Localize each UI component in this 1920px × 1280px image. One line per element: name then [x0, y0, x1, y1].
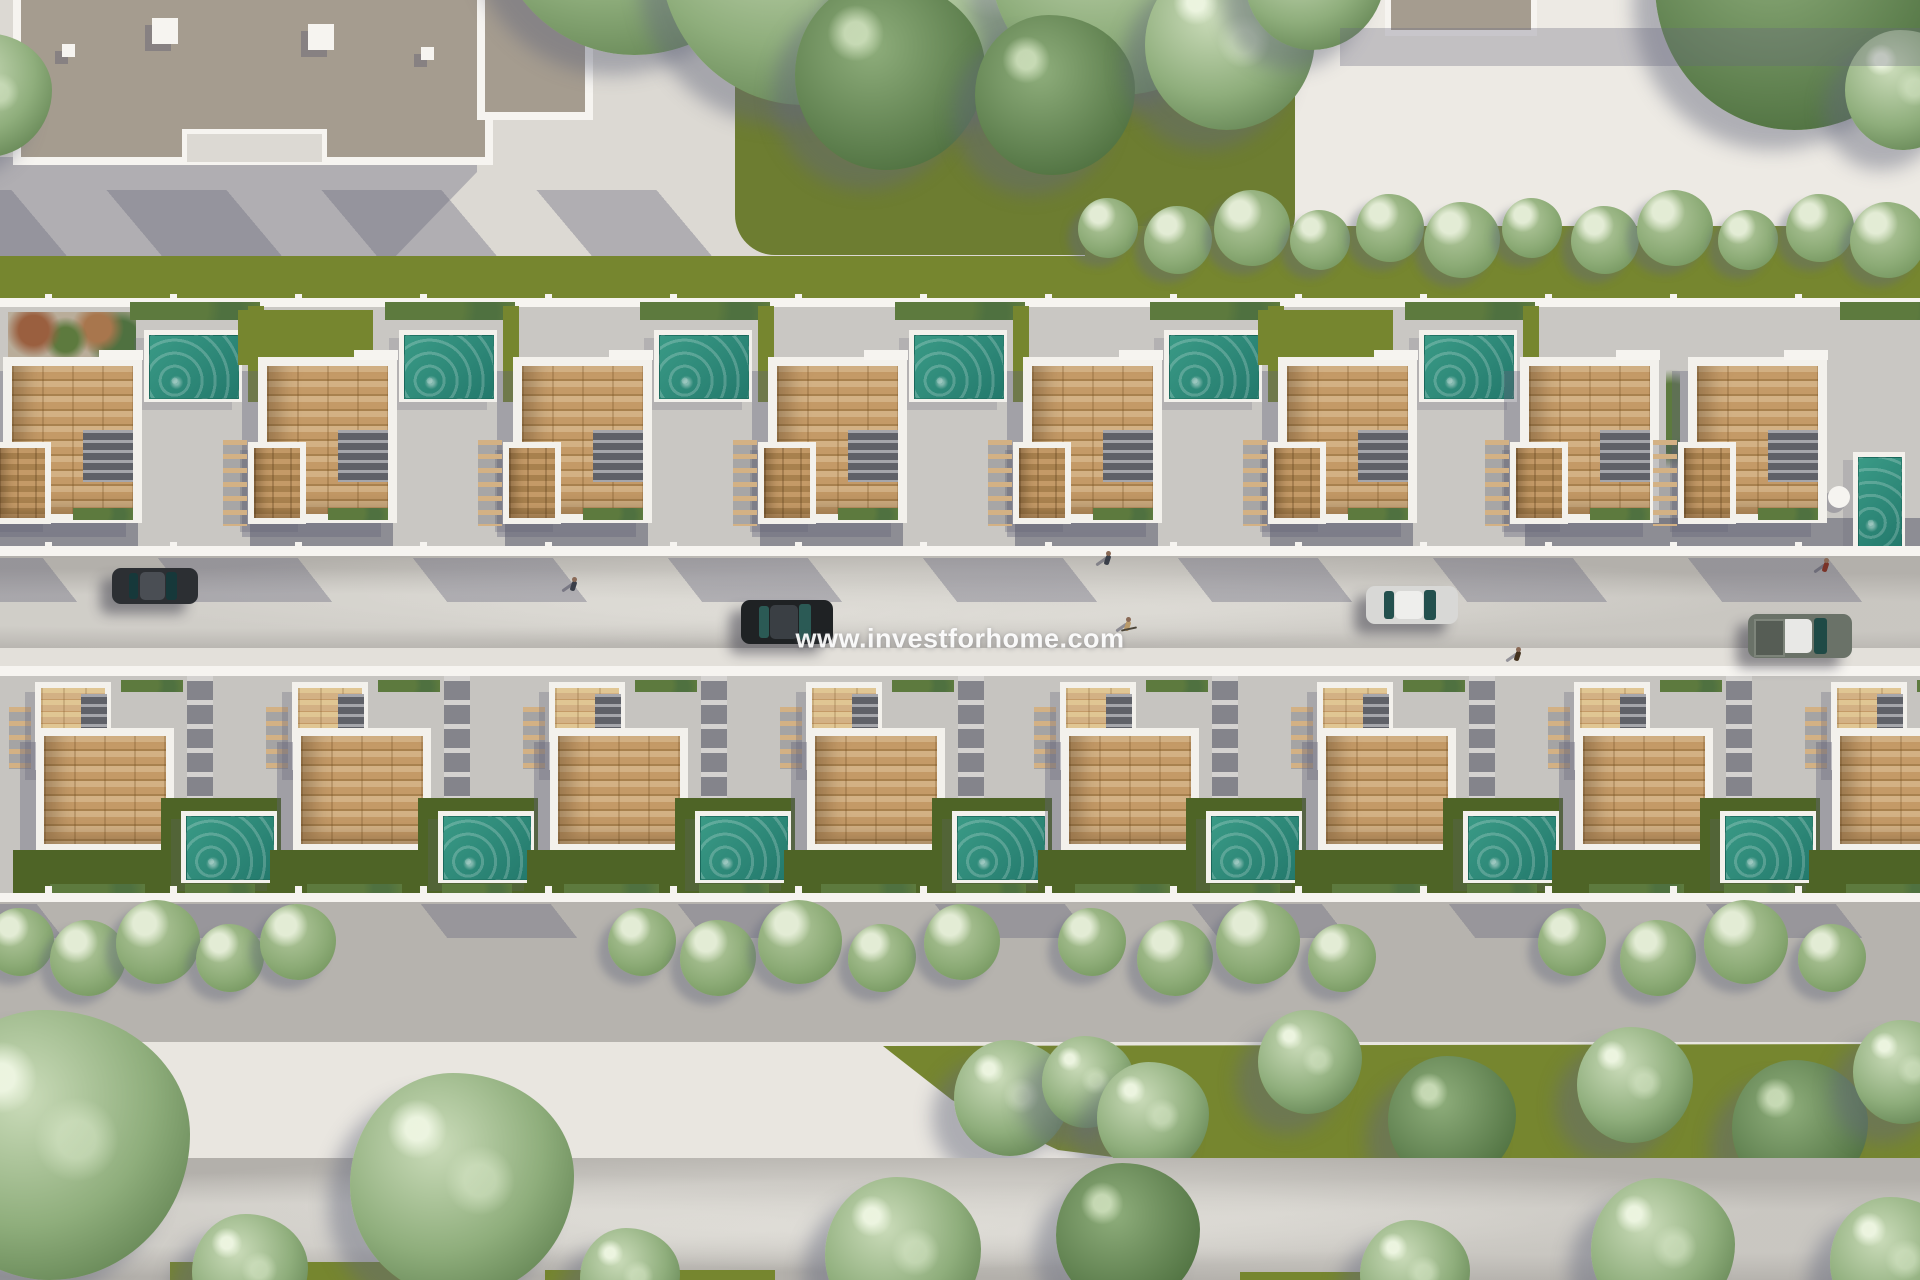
front-planter: [1590, 508, 1650, 520]
car-roof: [770, 605, 798, 638]
street-bush: [1137, 920, 1213, 996]
roof-parapet-step: [99, 350, 143, 360]
exterior-stair: [1805, 707, 1827, 769]
exterior-stair: [1291, 707, 1313, 769]
street-bush: [1308, 924, 1376, 992]
front-planter: [73, 508, 133, 520]
street-building-shadows-stripes: [0, 558, 1920, 602]
street-bush: [608, 908, 676, 976]
car-rear-glass: [129, 573, 138, 599]
villa-pool-water: [659, 335, 749, 399]
villa-entry-terrace-wood: [0, 448, 45, 518]
exterior-stair: [9, 707, 31, 769]
paver-walkway: [1469, 676, 1495, 804]
watermark-text: www.investforhome.com: [795, 624, 1124, 655]
person-pedestrian: [1511, 646, 1525, 664]
person-pedestrian: [1819, 557, 1833, 575]
person-pedestrian: [567, 576, 581, 594]
backyard-hedge: [895, 302, 1025, 320]
paver-walkway: [444, 676, 470, 804]
villa-pool-water: [957, 816, 1045, 880]
street-bush: [758, 900, 842, 984]
villa-entry-terrace-wood: [764, 448, 810, 518]
backyard-hedge: [640, 302, 770, 320]
villa-entry-terrace-wood: [1516, 448, 1562, 518]
hedge-bush: [1850, 202, 1920, 278]
villa-roof-terrace: [1840, 736, 1920, 844]
exterior-stair: [1034, 707, 1056, 769]
roof-parapet-step: [1374, 350, 1418, 360]
street-bush: [1538, 908, 1606, 976]
roof-parapet-step: [1119, 350, 1163, 360]
back-planter: [1660, 680, 1722, 692]
car-windshield: [1814, 618, 1828, 653]
person-head: [1126, 617, 1131, 622]
street-bush: [50, 920, 126, 996]
front-planter: [838, 508, 898, 520]
exterior-stair: [780, 707, 802, 769]
villa-entry-terrace-wood: [254, 448, 300, 518]
villa-roof-terrace: [1583, 736, 1705, 844]
front-planter: [328, 508, 388, 520]
car-roof: [1781, 619, 1812, 652]
villa-entry-terrace-wood: [1019, 448, 1065, 518]
villa-pool-water: [1211, 816, 1299, 880]
car-rear-glass: [759, 606, 768, 638]
aerial-development-render: www.investforhome.com: [0, 0, 1920, 1280]
car-dark-suv: [112, 568, 198, 604]
hedge-bush: [1078, 198, 1138, 258]
roof-stairwell: [1358, 430, 1408, 482]
exterior-stair: [223, 440, 247, 526]
roof-parapet-step: [1784, 350, 1828, 360]
villa-pool-water: [1468, 816, 1556, 880]
villa-roof-terrace: [558, 736, 680, 844]
villa-pool-water: [1424, 335, 1514, 399]
car-roof: [140, 572, 166, 599]
hedge-bush: [1144, 206, 1212, 274]
paver-walkway: [187, 676, 213, 804]
row2-back-wall: [0, 666, 1920, 676]
street-tree: [350, 1073, 574, 1280]
hedge-bush: [1502, 198, 1562, 258]
building-roof-notch: [182, 129, 327, 162]
street-building-shadows: [0, 558, 1920, 602]
villa-entry-terrace-wood: [1684, 448, 1730, 518]
car-silver-sedan: [1366, 586, 1458, 624]
person-head: [1516, 647, 1521, 652]
street-bush: [924, 904, 1000, 980]
villa-pool-vertical-water: [1858, 457, 1902, 549]
rooftop-unit: [152, 18, 178, 44]
villa-roof-terrace: [815, 736, 937, 844]
paver-walkway: [1212, 676, 1238, 804]
front-planter: [583, 508, 643, 520]
backyard-hedge: [1405, 302, 1535, 320]
hedge-bush: [1214, 190, 1290, 266]
back-planter: [121, 680, 183, 692]
roof-stairwell: [338, 430, 388, 482]
street-bush: [116, 900, 200, 984]
street-bush: [848, 924, 916, 992]
street-bush: [680, 920, 756, 996]
roof-parapet-step: [354, 350, 398, 360]
exterior-stair: [478, 440, 502, 526]
person-head: [1824, 558, 1829, 563]
exterior-stair: [1243, 440, 1267, 526]
back-planter: [892, 680, 954, 692]
exterior-stair: [988, 440, 1012, 526]
villa-roof-terrace: [301, 736, 423, 844]
villa-pool-water: [1725, 816, 1813, 880]
roof-stairwell: [593, 430, 643, 482]
villa-pool-water: [149, 335, 239, 399]
villa-pool-water: [404, 335, 494, 399]
roof-stairwell: [1600, 430, 1650, 482]
person-pedestrian: [1101, 550, 1115, 568]
exterior-stair: [266, 707, 288, 769]
small-building-shadow: [1340, 28, 1920, 66]
exterior-stair: [733, 440, 757, 526]
street-bush: [1216, 900, 1300, 984]
villa-roof-terrace: [1326, 736, 1448, 844]
front-planter: [1093, 508, 1153, 520]
backyard-hedge: [385, 302, 515, 320]
row2-front-posts-stripes: [0, 886, 1920, 893]
roof-parapet-step: [864, 350, 908, 360]
exterior-stair: [1485, 440, 1509, 526]
villa-pool-water: [443, 816, 531, 880]
hedge-bush: [1356, 194, 1424, 262]
rooftop-unit: [62, 44, 75, 57]
backyard-hedge: [1840, 302, 1920, 320]
car-windshield: [1424, 590, 1436, 620]
roof-stairwell: [1768, 430, 1818, 482]
car-roof: [1395, 591, 1423, 620]
roof-stairwell: [83, 430, 133, 482]
row1-front-fence: [0, 546, 1920, 556]
villa-roof-terrace: [44, 736, 166, 844]
villa-pool-water: [700, 816, 788, 880]
exterior-stair: [523, 707, 545, 769]
paver-walkway: [1726, 676, 1752, 804]
truck-bed: [1754, 619, 1785, 656]
paver-walkway: [701, 676, 727, 804]
hedge-bush: [1571, 206, 1639, 274]
hedge-bush: [1718, 210, 1778, 270]
rooftop-unit: [421, 47, 434, 60]
car-windshield: [166, 572, 177, 601]
street-bush: [196, 924, 264, 992]
back-planter: [378, 680, 440, 692]
back-planter: [1146, 680, 1208, 692]
hedge-bush: [1290, 210, 1350, 270]
street-bush: [1620, 920, 1696, 996]
villa-pool-water: [1169, 335, 1259, 399]
exterior-stair: [1653, 440, 1677, 526]
street-bush: [1704, 900, 1788, 984]
exterior-stair: [1548, 707, 1570, 769]
back-planter: [635, 680, 697, 692]
hedge-bush: [1424, 202, 1500, 278]
front-planter: [1348, 508, 1408, 520]
patio-table: [1828, 486, 1850, 508]
villa-pool-water: [186, 816, 274, 880]
street-bush: [1058, 908, 1126, 976]
villa-entry-terrace-wood: [509, 448, 555, 518]
person-head: [572, 577, 577, 582]
villa-pool-water: [914, 335, 1004, 399]
villa-entry-terrace-wood: [1274, 448, 1320, 518]
back-planter: [1403, 680, 1465, 692]
roof-parapet-step: [1616, 350, 1660, 360]
paver-walkway: [958, 676, 984, 804]
roof-stairwell: [1103, 430, 1153, 482]
rooftop-unit: [308, 24, 334, 50]
person-head: [1106, 551, 1111, 556]
row2-front-posts: [0, 886, 1920, 893]
roof-stairwell: [848, 430, 898, 482]
roof-parapet-step: [609, 350, 653, 360]
villa-roof-terrace: [1069, 736, 1191, 844]
street-bush: [1798, 924, 1866, 992]
car-gray-pickup: [1748, 614, 1852, 658]
front-planter: [1758, 508, 1818, 520]
hedge-bush: [1637, 190, 1713, 266]
hedge-bush: [1786, 194, 1854, 262]
car-rear-glass: [1384, 591, 1393, 618]
street-bush: [260, 904, 336, 980]
